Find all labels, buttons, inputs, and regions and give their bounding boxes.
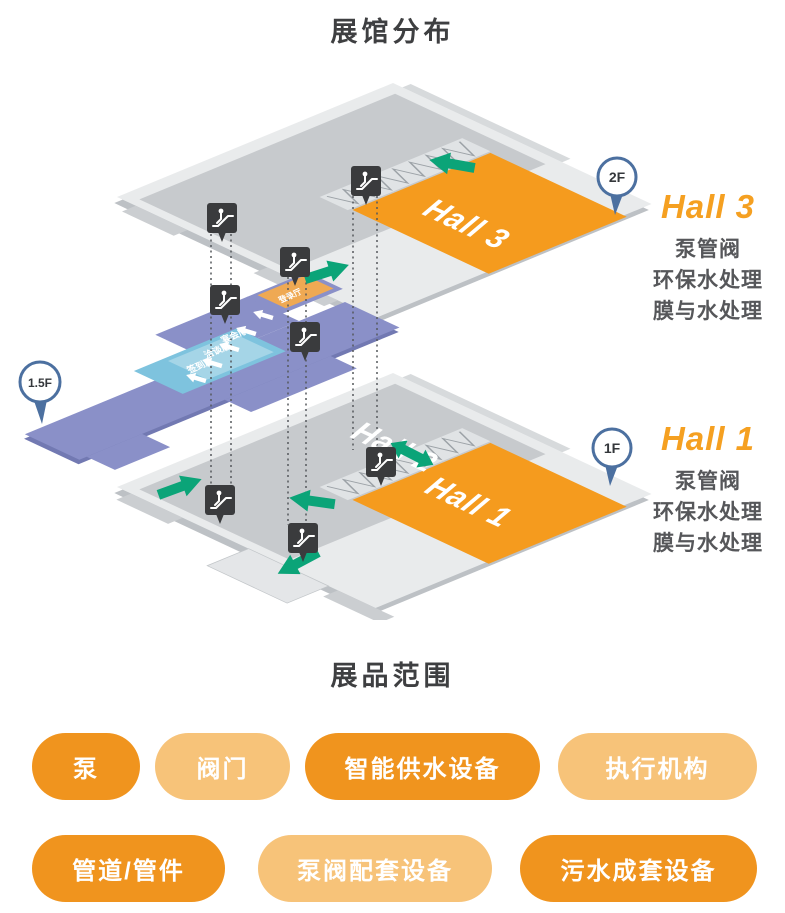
hall1-legend-line: 膜与水处理 — [632, 528, 784, 559]
hall3-legend-title: Hall 3 — [632, 188, 784, 226]
product-pill: 污水成套设备 — [520, 835, 757, 902]
page-title: 展馆分布 — [0, 10, 785, 49]
floor-2f-plane — [103, 80, 660, 327]
hall3-legend: Hall 3 泵管阀 环保水处理 膜与水处理 — [632, 188, 784, 327]
product-pill: 执行机构 — [558, 733, 757, 800]
floorplan-diagram: Hall 3 Hall 2 Hall 1 宴会厅 洽谈厅 签到厅 登录厅 — [0, 60, 660, 620]
product-pill: 管道/管件 — [32, 835, 225, 902]
hall1-legend-title: Hall 1 — [632, 420, 784, 458]
location-pin-icon: 1F — [604, 440, 621, 456]
hall3-legend-line: 膜与水处理 — [632, 296, 784, 327]
exhibition-map-page: 展馆分布 — [0, 0, 785, 913]
hall1-legend: Hall 1 泵管阀 环保水处理 膜与水处理 — [632, 420, 784, 559]
product-pill: 阀门 — [155, 733, 290, 800]
hall1-legend-line: 泵管阀 — [632, 466, 784, 497]
product-pill: 泵阀配套设备 — [258, 835, 492, 902]
product-pill: 智能供水设备 — [305, 733, 540, 800]
products-section-title: 展品范围 — [0, 654, 785, 693]
hall1-legend-line: 环保水处理 — [632, 497, 784, 528]
location-pin-icon: 1.5F — [28, 376, 52, 390]
floor-pin-1-5f: 1.5F — [20, 362, 60, 424]
hall3-legend-line: 环保水处理 — [632, 265, 784, 296]
product-pill: 泵 — [32, 733, 140, 800]
location-pin-icon: 2F — [609, 169, 626, 185]
hall3-legend-line: 泵管阀 — [632, 234, 784, 265]
